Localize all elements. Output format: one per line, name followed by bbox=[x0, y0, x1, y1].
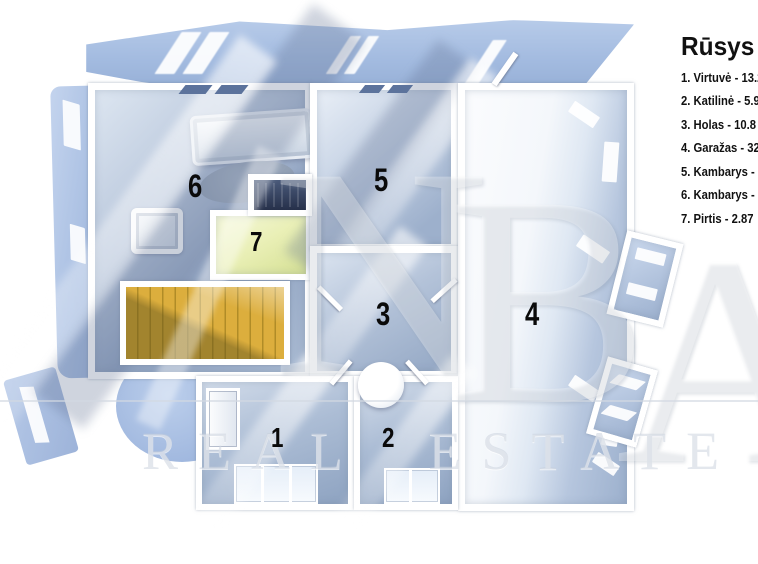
legend-panel: Rūsys 1. Virtuvė - 13.2 2. Katilinė - 5.… bbox=[681, 32, 758, 235]
watermark-band-line bbox=[0, 400, 758, 402]
legend-list: 1. Virtuvė - 13.2 2. Katilinė - 5.9 3. H… bbox=[681, 71, 758, 226]
legend-item-5: 5. Kambarys - bbox=[681, 165, 758, 179]
floorplan-page: { "legend": { "title": "Rūsys", "items":… bbox=[0, 0, 758, 564]
room-number-6: 6 bbox=[188, 170, 202, 202]
roof-band bbox=[86, 20, 634, 92]
room-number-5: 5 bbox=[374, 164, 388, 196]
garage-window-icon bbox=[568, 101, 600, 129]
room-number-4: 4 bbox=[525, 298, 539, 330]
watermark-real-estate: REAL ESTATE bbox=[142, 420, 739, 482]
legend-item-6: 6. Kambarys - bbox=[681, 188, 758, 202]
legend-item-2: 2. Katilinė - 5.9 bbox=[681, 94, 758, 108]
legend-item-3: 3. Holas - 10.8 bbox=[681, 118, 758, 132]
legend-title: Rūsys bbox=[681, 32, 758, 61]
side-window-icon bbox=[63, 100, 81, 151]
legend-item-7: 7. Pirtis - 2.87 bbox=[681, 212, 758, 226]
legend-item-1: 1. Virtuvė - 13.2 bbox=[681, 71, 758, 85]
legend-item-4: 4. Garažas - 32 bbox=[681, 141, 758, 155]
room-number-2: 2 bbox=[382, 424, 394, 452]
room-number-1: 1 bbox=[271, 424, 283, 452]
room-number-7: 7 bbox=[250, 228, 262, 256]
room-number-3: 3 bbox=[376, 298, 390, 330]
